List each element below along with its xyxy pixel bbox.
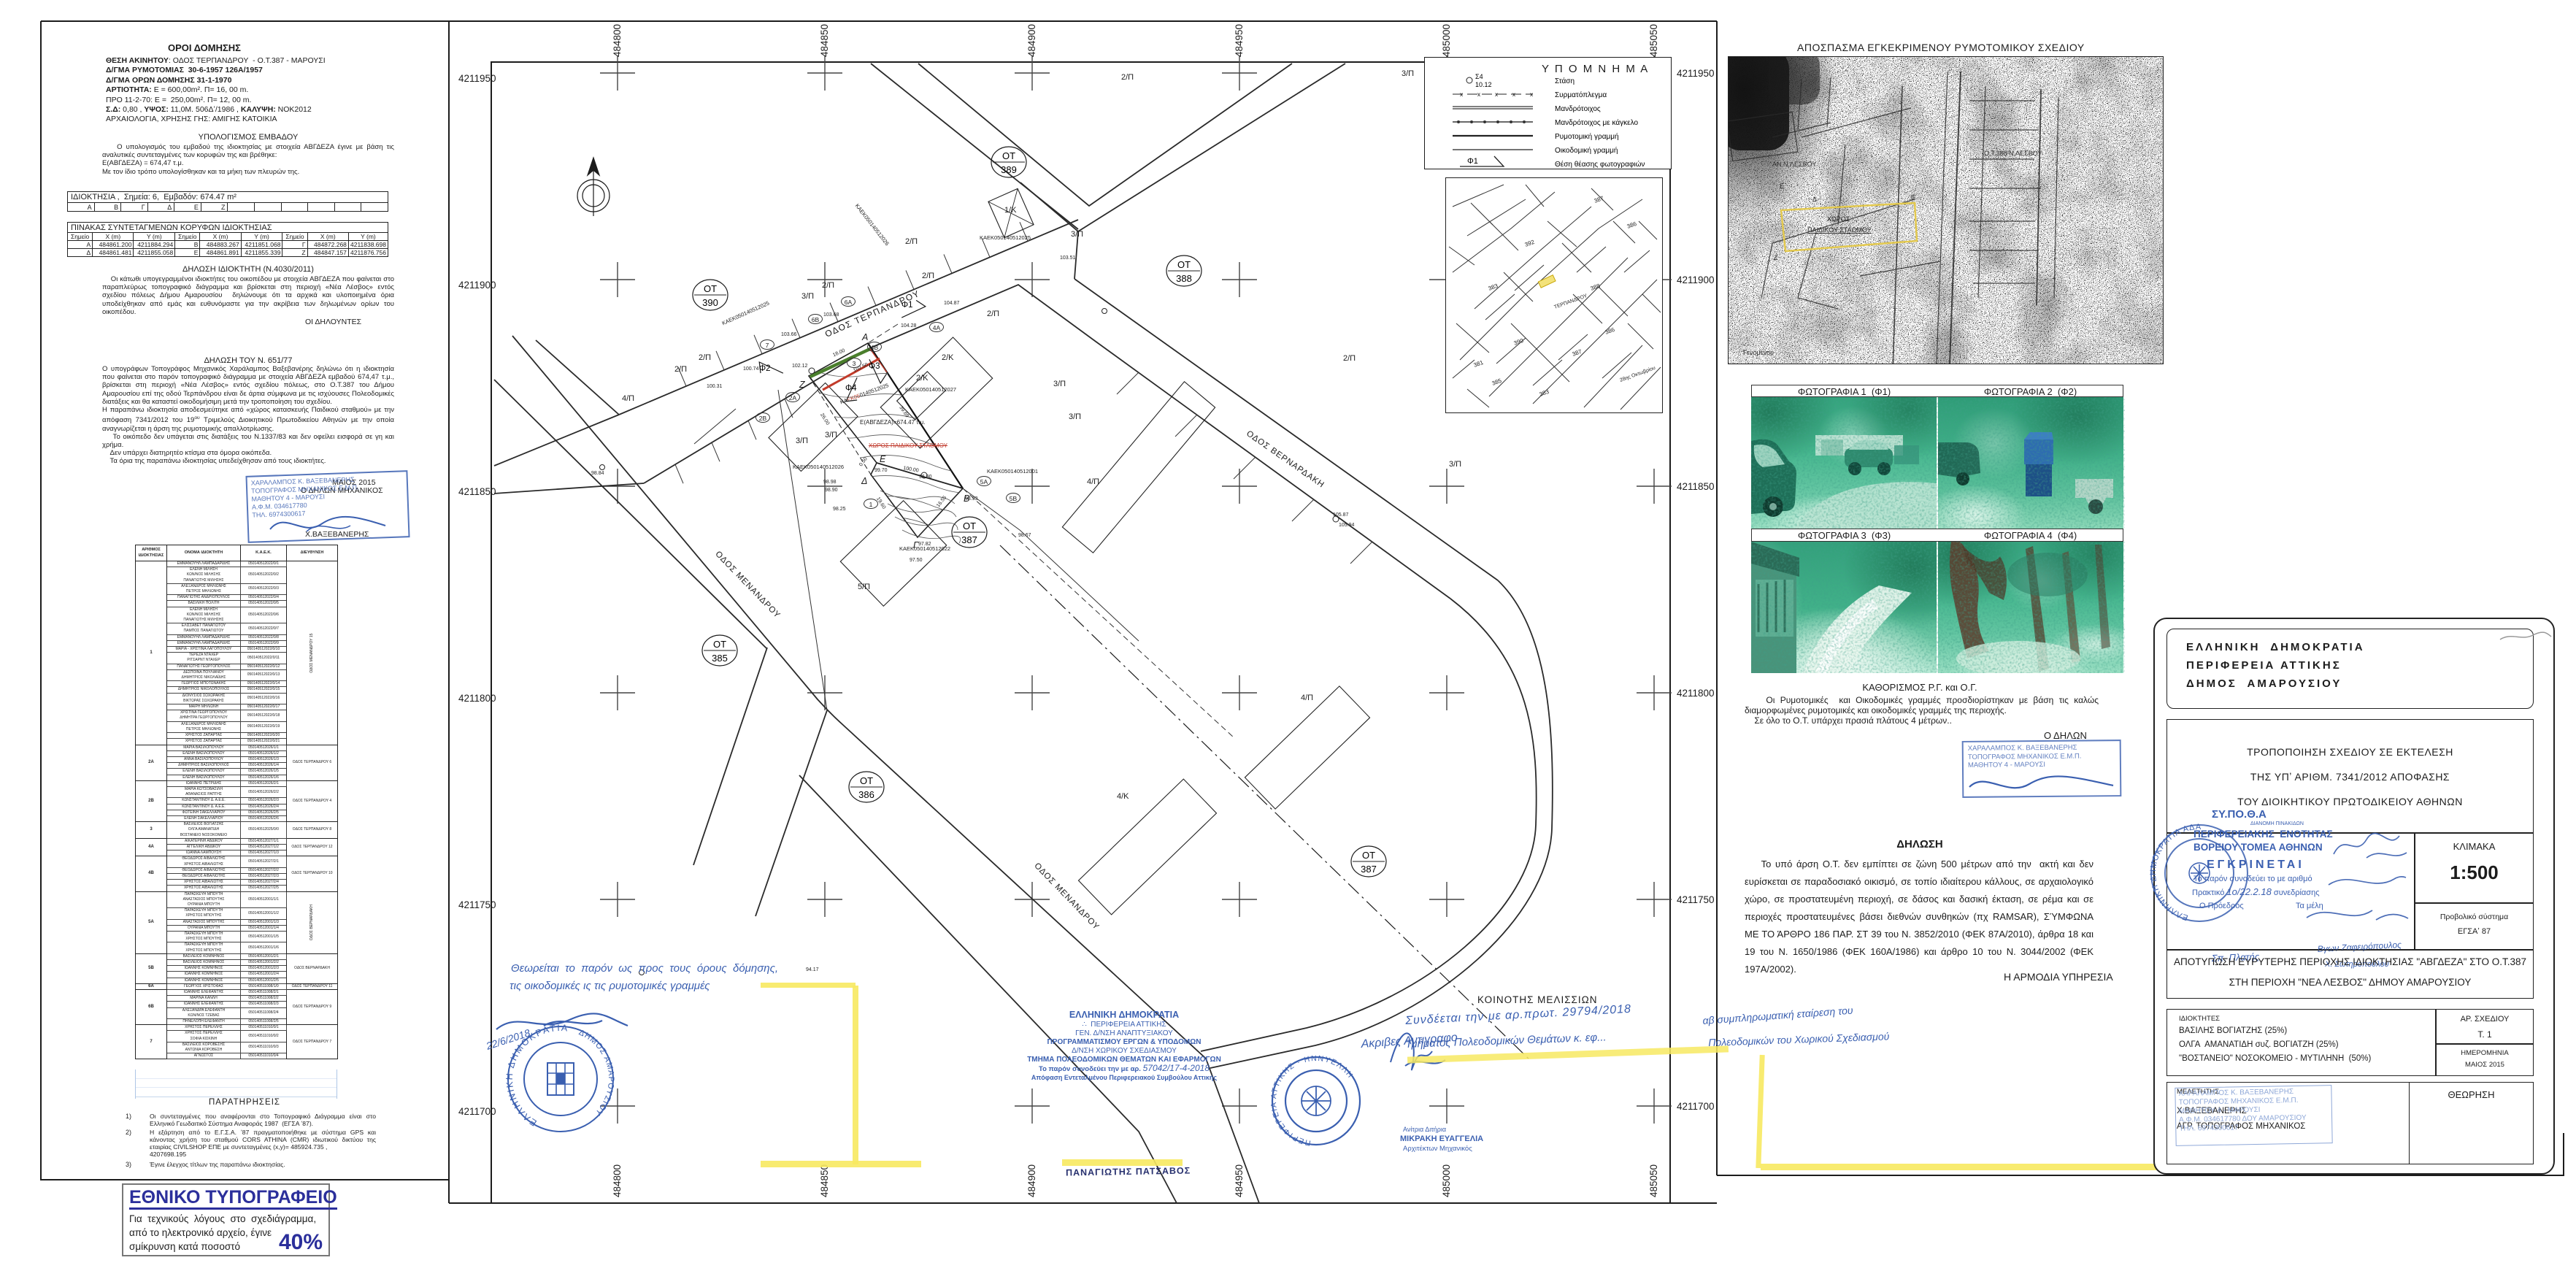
svg-text:Οικοδομική γραμμή: Οικοδομική γραμμή — [1555, 146, 1618, 155]
svg-text:Στάση: Στάση — [1555, 77, 1575, 85]
svg-text:Ρυμοτομική γραμμή: Ρυμοτομική γραμμή — [1555, 132, 1619, 141]
svg-text:Δ: Δ — [1812, 196, 1817, 203]
svg-text:Μανδρότοιχος με κάγκελο: Μανδρότοιχος με κάγκελο — [1555, 118, 1638, 127]
svg-text:x: x — [1477, 91, 1480, 98]
svg-text:Φ1: Φ1 — [901, 301, 913, 310]
svg-text:Φ3: Φ3 — [869, 362, 880, 371]
svg-text:Αρχιτέκτων Μηχανικός: Αρχιτέκτων Μηχανικός — [1403, 1145, 1472, 1153]
svg-text:ΠΑΙΔΙΚΟΥ ΣΤΑΘΜΟΥ: ΠΑΙΔΙΚΟΥ ΣΤΑΘΜΟΥ — [1807, 226, 1872, 234]
svg-text:Ε: Ε — [1780, 183, 1784, 190]
svg-text:Σ4: Σ4 — [1475, 73, 1483, 80]
svg-text:Πρακτικό 1ο/22.2.18 συνεδρίαση: Πρακτικό 1ο/22.2.18 συνεδρίασης — [2192, 886, 2320, 897]
svg-text:x: x — [1530, 91, 1533, 98]
svg-text:386: 386 — [1626, 220, 1638, 230]
svg-text:ΔΙΑΝΟΜΗ ΠΙΝΑΚΙΔΩΝ: ΔΙΑΝΟΜΗ ΠΙΝΑΚΙΔΩΝ — [2250, 821, 2304, 826]
svg-text:ΣΥ.ΠΟ.Θ.Α: ΣΥ.ΠΟ.Θ.Α — [2212, 808, 2267, 821]
svg-text:28ης Οκτωβρίου: 28ης Οκτωβρίου — [1619, 365, 1656, 383]
svg-text:Ο.Τ.388 Ν.ΛΕΣΒΟΥ: Ο.Τ.388 Ν.ΛΕΣΒΟΥ — [1984, 150, 2042, 157]
svg-text:392: 392 — [1524, 239, 1536, 248]
svg-text:x: x — [1495, 91, 1498, 98]
svg-text:387: 387 — [1572, 348, 1583, 358]
svg-text:388: 388 — [1590, 283, 1602, 292]
svg-text:x: x — [1512, 91, 1515, 98]
svg-text:ΕΓΚΡΙΝΕΤΑΙ: ΕΓΚΡΙΝΕΤΑΙ — [2207, 859, 2304, 871]
svg-text:Ανίτρια Διτήρια: Ανίτρια Διτήρια — [1403, 1126, 1446, 1133]
svg-text:Φ2: Φ2 — [759, 364, 771, 373]
svg-text:x: x — [1460, 91, 1463, 98]
svg-text:Φ4: Φ4 — [845, 384, 857, 393]
svg-text:ΧΩΡΟΣ: ΧΩΡΟΣ — [1827, 215, 1850, 223]
svg-text:ΒΟΡΕΙΟΥ ΤΟΜΕΑ ΑΘΗΝΩΝ: ΒΟΡΕΙΟΥ ΤΟΜΕΑ ΑΘΗΝΩΝ — [2194, 842, 2323, 853]
svg-text:Τα μέλη: Τα μέλη — [2296, 902, 2323, 910]
svg-text:ΠΕΡΙΦΕΡΕΙΑΚΗΣ ΕΝΟΤΗΤΑΣ: ΠΕΡΙΦΕΡΕΙΑΚΗΣ ΕΝΟΤΗΤΑΣ — [2194, 829, 2333, 840]
svg-text:ΑΝ Ν.ΛΕΣΒΟΥ: ΑΝ Ν.ΛΕΣΒΟΥ — [1772, 161, 1816, 168]
svg-text:Φ1: Φ1 — [1467, 157, 1478, 166]
svg-text:Β: Β — [1911, 194, 1915, 201]
svg-text:ΜΙΚΡΑΚΗ ΕΥΑΓΓΕΛΙΑ: ΜΙΚΡΑΚΗ ΕΥΑΓΓΕΛΙΑ — [1400, 1134, 1483, 1143]
svg-text:381: 381 — [1473, 359, 1485, 369]
svg-text:Ζ: Ζ — [1774, 254, 1778, 261]
svg-text:Μανδρότοιχος: Μανδρότοιχος — [1555, 104, 1601, 113]
svg-text:383: 383 — [1539, 388, 1550, 398]
svg-text:10.12: 10.12 — [1475, 81, 1492, 88]
svg-text:Γενομένου: Γενομένου — [1743, 349, 1774, 356]
svg-text:386: 386 — [1604, 326, 1616, 336]
svg-text:Το παρόν συνοδεύει το με αριθμ: Το παρόν συνοδεύει το με αριθμό — [2194, 875, 2312, 883]
svg-text:ΤΕΡΠΑΝΔΡΟΥ: ΤΕΡΠΑΝΔΡΟΥ — [1553, 293, 1588, 310]
svg-text:Θέση θέασης φωτογραφιών: Θέση θέασης φωτογραφιών — [1555, 160, 1645, 169]
svg-text:383: 383 — [1488, 283, 1499, 292]
svg-text:385: 385 — [1491, 377, 1503, 387]
svg-text:390: 390 — [1513, 337, 1525, 347]
svg-text:387: 387 — [1593, 195, 1605, 204]
svg-text:Συρματόπλεγμα: Συρματόπλεγμα — [1555, 91, 1607, 99]
